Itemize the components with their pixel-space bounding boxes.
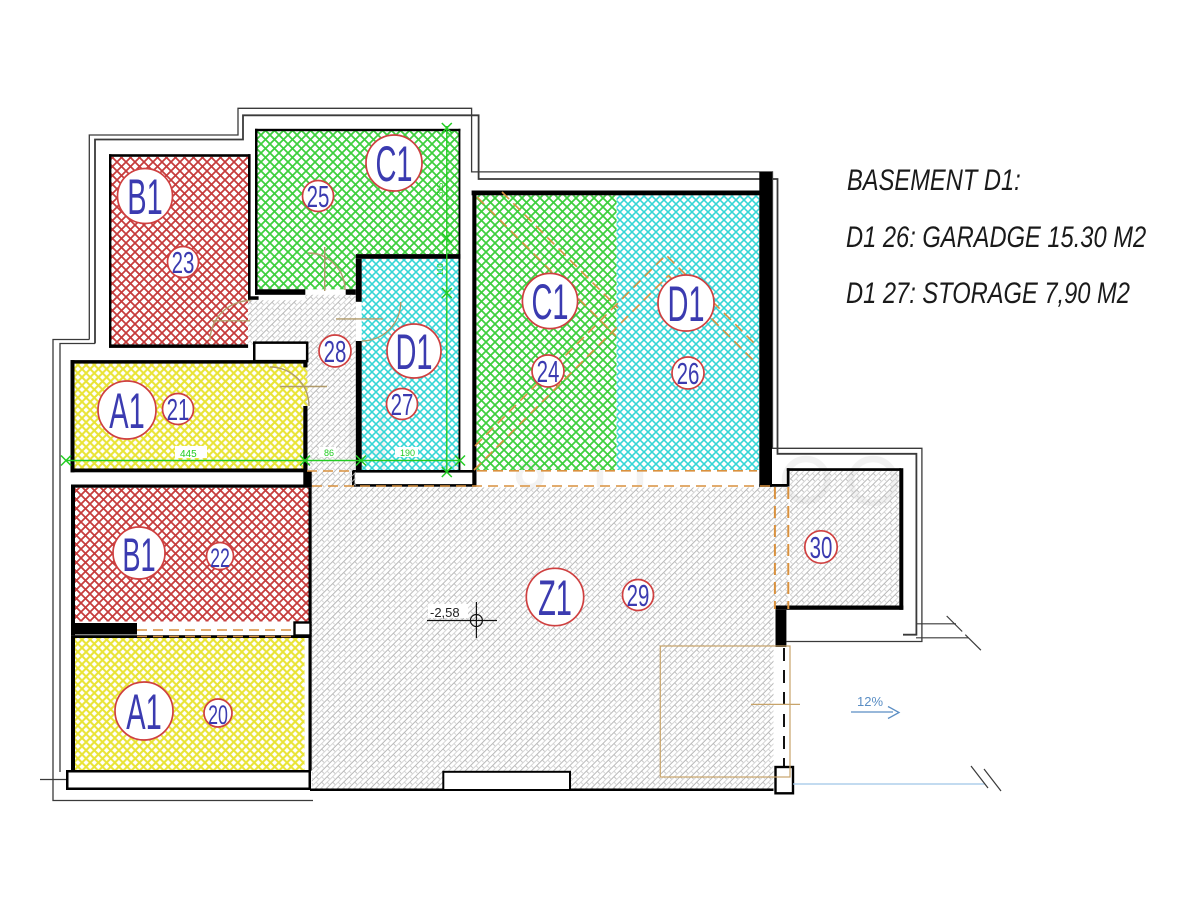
svg-text:25: 25 xyxy=(307,179,330,214)
svg-text:30: 30 xyxy=(810,530,833,565)
svg-text:26: 26 xyxy=(677,356,700,391)
svg-text:Z1: Z1 xyxy=(538,570,572,626)
svg-text:BASEMENT D1:: BASEMENT D1: xyxy=(847,163,1021,196)
svg-text:315: 315 xyxy=(436,182,445,196)
svg-text:C1: C1 xyxy=(531,274,568,330)
svg-text:23: 23 xyxy=(172,245,195,280)
svg-text:D1: D1 xyxy=(395,324,432,380)
svg-text:21: 21 xyxy=(167,392,190,427)
svg-text:445: 445 xyxy=(180,449,197,460)
svg-text:C1: C1 xyxy=(375,136,412,192)
svg-text:A1: A1 xyxy=(109,383,144,439)
svg-text:29: 29 xyxy=(627,578,650,613)
svg-text:D1: D1 xyxy=(667,276,704,332)
svg-text:27: 27 xyxy=(391,387,414,422)
svg-text:A1: A1 xyxy=(126,684,161,740)
svg-text:D1 26: GARADGE 15.30 M2: D1 26: GARADGE 15.30 M2 xyxy=(846,220,1146,253)
svg-text:D1 27: STORAGE 7,90 M2: D1 27: STORAGE 7,90 M2 xyxy=(846,276,1130,309)
svg-text:B1: B1 xyxy=(122,529,155,582)
svg-text:24: 24 xyxy=(537,354,560,389)
svg-text:28: 28 xyxy=(324,334,347,369)
svg-text:-2,58: -2,58 xyxy=(430,605,460,620)
svg-text:22: 22 xyxy=(210,542,230,573)
svg-text:110: 110 xyxy=(436,263,445,276)
svg-text:20: 20 xyxy=(208,699,228,730)
svg-text:B1: B1 xyxy=(127,169,162,225)
svg-text:12%: 12% xyxy=(857,694,883,709)
svg-text:86: 86 xyxy=(324,448,334,458)
svg-text:190: 190 xyxy=(400,448,415,458)
